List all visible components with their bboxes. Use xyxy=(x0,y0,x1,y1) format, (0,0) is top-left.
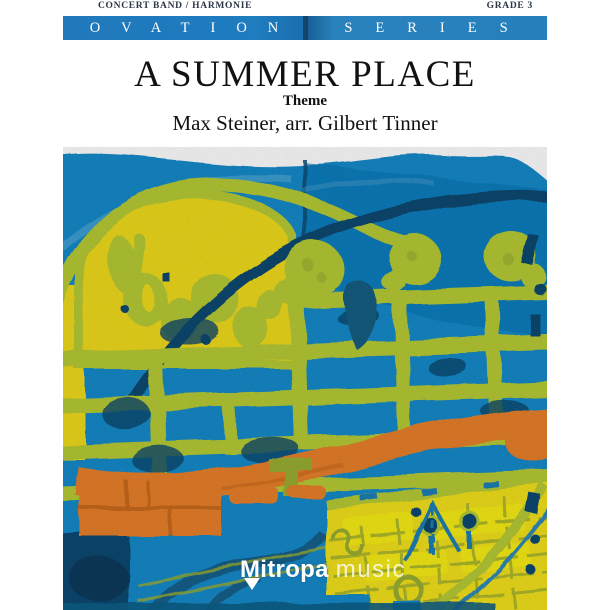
series-bar-right-label: SERIES xyxy=(305,20,547,37)
series-bar: OVATION SERIES xyxy=(63,16,547,40)
artwork-grain-texture xyxy=(63,147,547,610)
piece-title: A SUMMER PLACE xyxy=(0,53,610,96)
publisher-logo: Mitropamusic xyxy=(240,556,406,596)
grade-label: GRADE 3 xyxy=(487,1,533,11)
mitropa-m-triangle-icon xyxy=(244,578,260,590)
series-bar-left-label: OVATION xyxy=(63,20,305,37)
music-wordmark: music xyxy=(336,556,406,583)
piece-subtitle: Theme xyxy=(0,93,610,110)
series-bar-seam xyxy=(303,16,308,40)
cover-artwork xyxy=(63,147,547,610)
music-cover-page: CONCERT BAND / HARMONIE GRADE 3 OVATION … xyxy=(0,0,610,610)
composer-credits: Max Steiner, arr. Gilbert Tinner xyxy=(0,111,610,136)
category-label: CONCERT BAND / HARMONIE xyxy=(98,1,252,11)
